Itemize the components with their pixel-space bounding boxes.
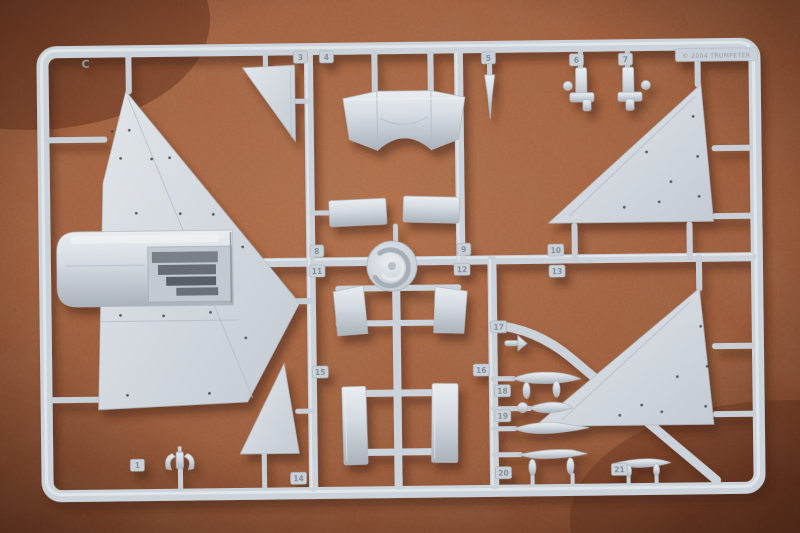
svg-text:20: 20: [498, 469, 509, 478]
part-number-tag-6: 6: [569, 54, 583, 66]
svg-text:3: 3: [298, 53, 303, 62]
svg-text:19: 19: [498, 412, 509, 421]
part-number-tag-21: 21: [611, 463, 627, 475]
svg-text:9: 9: [461, 245, 466, 254]
frame-letter: C: [81, 58, 89, 71]
svg-text:18: 18: [497, 387, 508, 396]
part-number-tag-8: 8: [310, 245, 324, 257]
svg-text:7: 7: [623, 55, 628, 64]
stabilizer-part-right: [433, 286, 468, 333]
svg-text:13: 13: [552, 267, 563, 276]
copyright-plate: © 2004 TRUMPETER: [675, 48, 757, 62]
part-number-tag-4: 4: [319, 51, 333, 63]
svg-text:15: 15: [315, 368, 326, 377]
part-number-tag-18: 18: [494, 385, 510, 397]
flap-part-left: [329, 198, 387, 227]
svg-text:12: 12: [457, 265, 468, 274]
svg-text:5: 5: [486, 54, 491, 63]
svg-text:16: 16: [476, 366, 487, 375]
part-number-tag-5: 5: [481, 52, 495, 64]
airbrake-panel-part-right: [432, 383, 458, 462]
svg-text:8: 8: [314, 247, 319, 256]
part-number-tag-11: 11: [309, 265, 325, 277]
part-number-tag-1: 1: [130, 459, 144, 471]
part-number-tag-15: 15: [312, 366, 328, 378]
svg-text:14: 14: [293, 474, 304, 483]
svg-text:17: 17: [493, 323, 504, 332]
svg-text:10: 10: [551, 246, 562, 255]
photo-of-model-kit-sprue: C © 2004 TRUMPETER 1 3 4 5 6 7 8 9: [0, 0, 800, 533]
part-number-tag-10: 10: [548, 244, 564, 256]
part-number-tag-3: 3: [293, 51, 307, 63]
airbrake-panel-part-left: [342, 386, 368, 465]
part-number-tag-9: 9: [457, 243, 471, 255]
svg-text:4: 4: [324, 53, 329, 62]
part-number-tag-19: 19: [495, 410, 511, 422]
fuselage-half-part: [57, 230, 234, 307]
part-number-tag-17: 17: [491, 321, 507, 333]
copyright-text: © 2004 TRUMPETER: [682, 52, 750, 60]
part-number-tag-16: 16: [473, 364, 489, 376]
part-number-tag-20: 20: [495, 467, 511, 479]
svg-text:21: 21: [614, 465, 625, 474]
svg-text:1: 1: [135, 461, 140, 470]
part-number-tag-7: 7: [618, 53, 632, 65]
svg-text:6: 6: [574, 56, 579, 65]
stabilizer-part-left: [333, 285, 368, 335]
flap-part-right: [403, 196, 460, 223]
svg-text:11: 11: [312, 267, 323, 276]
part-number-tag-14: 14: [290, 472, 306, 484]
sprue-swirl-disc-part: [367, 241, 418, 292]
part-number-tag-12: 12: [454, 263, 470, 275]
part-number-tag-13: 13: [549, 265, 565, 277]
